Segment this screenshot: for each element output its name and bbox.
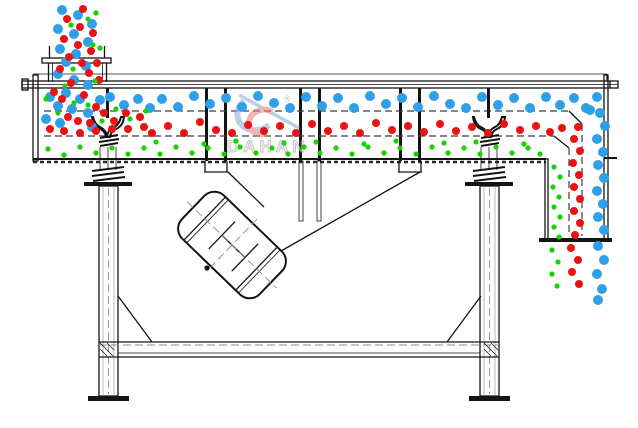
green-particle (93, 10, 98, 15)
red-particle (532, 122, 540, 130)
chute-inner-wall (545, 159, 548, 239)
blue-particle (119, 100, 129, 110)
red-particle (576, 195, 584, 203)
red-particle (180, 129, 188, 137)
center-hanger-a (299, 161, 303, 221)
red-particle (46, 125, 54, 133)
blue-particle (105, 92, 115, 102)
blue-particle (592, 186, 602, 196)
blue-particle (445, 99, 455, 109)
green-particle (143, 108, 148, 113)
blue-particle (269, 98, 279, 108)
green-particle (397, 145, 402, 150)
green-particle (473, 139, 478, 144)
blue-particle (555, 100, 565, 110)
green-particle (43, 96, 48, 101)
blue-particle (397, 93, 407, 103)
green-particle (477, 151, 482, 156)
green-particle (525, 145, 530, 150)
blue-particle (593, 241, 603, 251)
red-particle (576, 219, 584, 227)
green-particle (521, 141, 526, 146)
blue-particle (598, 147, 608, 157)
red-particle (58, 95, 66, 103)
blue-particle (333, 93, 343, 103)
red-particle (500, 120, 508, 128)
red-particle (576, 147, 584, 155)
red-particle (87, 47, 95, 55)
green-particle (413, 151, 418, 156)
red-particle (79, 5, 87, 13)
green-particle (393, 138, 398, 143)
red-particle (436, 120, 444, 128)
green-particle (157, 151, 162, 156)
red-particle (574, 123, 582, 131)
red-particle (546, 128, 554, 136)
green-particle (221, 151, 226, 156)
blue-particle (237, 102, 247, 112)
blue-particle (253, 91, 263, 101)
green-particle (70, 66, 75, 71)
green-particle (125, 151, 130, 156)
green-particle (349, 151, 354, 156)
green-particle (153, 139, 158, 144)
green-particle (61, 152, 66, 157)
blue-particle (205, 99, 215, 109)
green-particle (141, 145, 146, 150)
blue-particle (57, 5, 67, 15)
green-particle (461, 145, 466, 150)
blue-particle (83, 80, 93, 90)
vibration-motor (162, 176, 301, 314)
red-particle (484, 129, 492, 137)
blue-particle (41, 114, 51, 124)
green-particle (85, 16, 90, 21)
red-particle (76, 23, 84, 31)
blue-particle (381, 99, 391, 109)
red-particle (388, 126, 396, 134)
blue-particle (569, 93, 579, 103)
red-particle (148, 129, 156, 137)
blue-particle (301, 92, 311, 102)
blue-particle (592, 134, 602, 144)
center-hanger-b (317, 161, 321, 221)
blue-particle (83, 108, 93, 118)
red-particle (56, 65, 64, 73)
blue-particle (461, 103, 471, 113)
red-particle (74, 117, 82, 125)
blue-particle (189, 91, 199, 101)
red-particle (260, 127, 268, 135)
red-particle (92, 127, 100, 135)
red-particle (122, 109, 130, 117)
blue-particle (593, 295, 603, 305)
red-particle (63, 15, 71, 23)
red-particle (558, 124, 566, 132)
blue-particle (595, 108, 605, 118)
blue-particle (53, 24, 63, 34)
green-particle (557, 174, 562, 179)
blue-particle (600, 121, 610, 131)
green-particle (62, 83, 67, 88)
red-particle (468, 123, 476, 131)
mount-arm-left (228, 172, 264, 207)
blue-particle (55, 44, 65, 54)
blue-particle (525, 103, 535, 113)
green-particle (361, 141, 366, 146)
top-rail (22, 74, 618, 90)
green-particle (71, 100, 76, 105)
red-particle (420, 128, 428, 136)
blue-particle (597, 284, 607, 294)
foot-plate-left (88, 396, 129, 401)
blue-particle (133, 94, 143, 104)
blue-particle (157, 94, 167, 104)
red-particle (89, 29, 97, 37)
green-particle (92, 78, 97, 83)
brace-right (447, 296, 481, 342)
green-particle (85, 102, 90, 107)
blue-particle (493, 100, 503, 110)
red-particle (571, 231, 579, 239)
suspension-left (84, 88, 132, 401)
green-particle (93, 150, 98, 155)
green-particle (285, 151, 290, 156)
vibrating-screen-diagram: DAHAN ® (0, 0, 638, 428)
green-particle (45, 146, 50, 151)
mount-arm-right (281, 172, 420, 251)
red-particle (74, 41, 82, 49)
green-particle (237, 144, 242, 149)
base-frame (99, 296, 499, 357)
blue-particle (585, 105, 595, 115)
red-particle (516, 126, 524, 134)
red-particle (140, 123, 148, 131)
diagram-canvas: DAHAN ® (0, 0, 638, 428)
blue-particle (592, 92, 602, 102)
blue-particle (349, 103, 359, 113)
green-particle (109, 145, 114, 150)
green-particle (173, 144, 178, 149)
green-particle (55, 110, 60, 115)
green-particle (68, 22, 73, 27)
blue-particle (173, 102, 183, 112)
green-particle (90, 42, 95, 47)
red-particle (372, 119, 380, 127)
red-particle (196, 118, 204, 126)
green-particle (77, 144, 82, 149)
green-particle (113, 106, 118, 111)
red-particle (212, 126, 220, 134)
green-particle (253, 150, 258, 155)
red-particle (85, 69, 93, 77)
green-particle (233, 138, 238, 143)
green-particle (205, 145, 210, 150)
green-particle (201, 141, 206, 146)
red-particle (64, 113, 72, 121)
red-particle (136, 113, 144, 121)
red-particle (110, 117, 118, 125)
green-particle (333, 145, 338, 150)
red-particle (575, 280, 583, 288)
green-particle (441, 140, 446, 145)
green-particle (556, 194, 561, 199)
red-particle (65, 53, 73, 61)
red-particle (76, 129, 84, 137)
red-particle (575, 171, 583, 179)
green-particle (554, 283, 559, 288)
blue-particle (285, 103, 295, 113)
green-particle (313, 139, 318, 144)
red-particle (67, 79, 75, 87)
blue-particle (592, 269, 602, 279)
red-particle (60, 127, 68, 135)
red-particle (100, 109, 108, 117)
green-particle (551, 224, 556, 229)
green-particle (269, 145, 274, 150)
red-particle (574, 256, 582, 264)
red-particle (86, 119, 94, 127)
green-particle (99, 118, 104, 123)
red-particle (324, 127, 332, 135)
red-particle (80, 91, 88, 99)
green-particle (429, 144, 434, 149)
red-particle (60, 35, 68, 43)
green-particle (189, 150, 194, 155)
foot-plate-right (469, 396, 510, 401)
red-particle (570, 183, 578, 191)
red-particle (276, 122, 284, 130)
green-particle (549, 247, 554, 252)
green-particle (301, 144, 306, 149)
green-particle (537, 151, 542, 156)
brace-left (118, 296, 152, 342)
blue-particle (599, 225, 609, 235)
green-particle (317, 150, 322, 155)
green-particle (551, 204, 556, 209)
red-particle (570, 207, 578, 215)
red-particle (108, 125, 116, 133)
blue-particle (317, 101, 327, 111)
particles-layer (41, 5, 610, 305)
red-particle (292, 129, 300, 137)
blue-particle (599, 255, 609, 265)
green-particle (493, 144, 498, 149)
red-particle (164, 122, 172, 130)
green-particle (551, 164, 556, 169)
red-particle (124, 125, 132, 133)
green-particle (555, 259, 560, 264)
blue-particle (69, 29, 79, 39)
green-particle (97, 45, 102, 50)
red-particle (452, 127, 460, 135)
blue-particle (55, 118, 65, 128)
blue-particle (541, 92, 551, 102)
red-particle (569, 159, 577, 167)
blue-particle (221, 93, 231, 103)
red-particle (568, 268, 576, 276)
green-particle (445, 150, 450, 155)
watermark-registered-mark: ® (284, 94, 291, 104)
red-particle (404, 122, 412, 130)
green-particle (549, 271, 554, 276)
red-particle (228, 129, 236, 137)
red-particle (567, 244, 575, 252)
green-particle (556, 234, 561, 239)
red-particle (50, 88, 58, 96)
green-particle (557, 214, 562, 219)
blue-particle (413, 102, 423, 112)
blue-particle (67, 104, 77, 114)
blue-particle (593, 160, 603, 170)
red-particle (340, 122, 348, 130)
red-particle (356, 129, 364, 137)
green-particle (509, 150, 514, 155)
red-particle (308, 120, 316, 128)
blue-particle (429, 91, 439, 101)
red-particle (93, 59, 101, 67)
blue-particle (365, 91, 375, 101)
red-particle (78, 59, 86, 67)
blue-particle (598, 199, 608, 209)
spring-rod-right (487, 88, 490, 118)
green-particle (550, 184, 555, 189)
blue-particle (477, 92, 487, 102)
motor-mount (204, 161, 422, 251)
red-particle (244, 121, 252, 129)
red-particle (570, 135, 578, 143)
green-particle (127, 116, 132, 121)
motor-drain-plug (204, 265, 209, 270)
green-particle (281, 140, 286, 145)
blue-particle (599, 173, 609, 183)
green-particle (381, 150, 386, 155)
red-particle (92, 103, 100, 111)
blue-particle (509, 93, 519, 103)
blue-particle (593, 212, 603, 222)
